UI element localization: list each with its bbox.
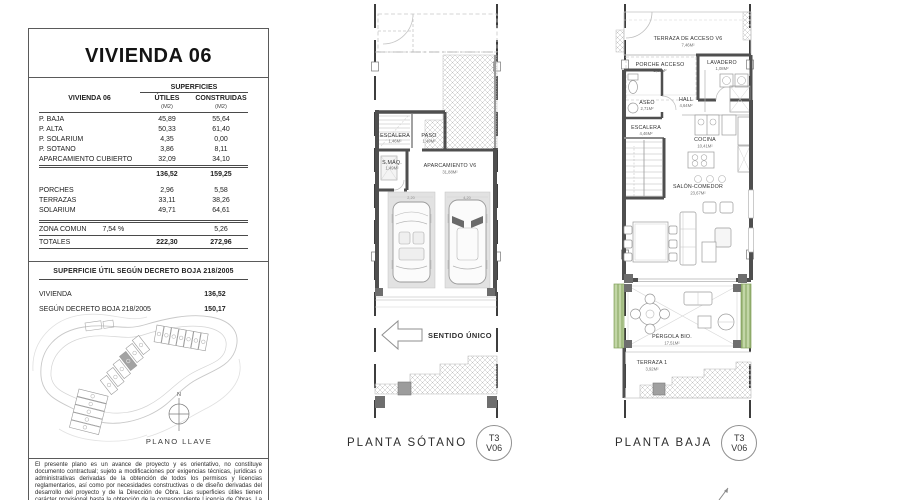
room-area-terraza1: 3,92M²	[645, 367, 659, 372]
unit-badge-baja: T3 V06	[721, 425, 757, 461]
unit-label: (M2)	[194, 104, 248, 110]
row-header: VIVIENDA 06	[39, 95, 140, 102]
room-area-terraza-acceso: 7,46M²	[681, 43, 695, 48]
terraza-1	[624, 348, 751, 398]
site-roads	[33, 314, 240, 441]
terraza-acceso	[616, 12, 751, 55]
table-row: P. ALTA 50,33 61,40	[39, 124, 248, 134]
table-group-header-row: SUPERFICIES	[39, 83, 248, 93]
divider	[39, 112, 248, 113]
north-arrow-partial	[715, 486, 735, 500]
caption-baja: PLANTA BAJA T3 V06	[615, 425, 757, 461]
unit-label: (M2)	[140, 104, 194, 110]
svg-text:N: N	[177, 392, 181, 398]
decreto-row: VIVIENDA 136,52	[39, 287, 248, 302]
room-label-aparcamiento: APARCAMIENTO V6	[424, 163, 477, 169]
room-area-smaq: 1,49M²	[385, 166, 399, 171]
dining-set	[624, 222, 677, 262]
table-row: P. SOLÁRIUM 4,35 0,00	[39, 134, 248, 144]
plan-title-baja: PLANTA BAJA	[615, 437, 712, 449]
room-area-escalera-baja: 4,46M²	[639, 131, 653, 136]
room-area-cocina: 10,41M²	[697, 144, 713, 149]
car-left	[392, 202, 432, 282]
site-plots-upper-row	[154, 325, 208, 351]
room-label-salon: SALÓN-COMEDOR	[673, 183, 723, 190]
key-plan-caption: PLANO LLAVE	[146, 437, 212, 446]
upper-floor-projection	[378, 14, 497, 52]
cocina	[688, 115, 750, 183]
room-area-aseo: 2,71M²	[640, 106, 654, 111]
planter-left	[614, 284, 624, 348]
table-unit-row: (M2) (M2)	[39, 103, 248, 111]
group-header: SUPERFICIES	[140, 84, 248, 93]
caption-sotano: PLANTA SÓTANO T3 V06	[347, 425, 512, 461]
site-plots-lower-block	[69, 389, 108, 435]
room-area-pergola: 17,51M²	[664, 341, 680, 346]
page-title: VIVIENDA 06	[29, 45, 268, 68]
unit-badge-sotano: T3 V06	[476, 425, 512, 461]
floor-plan-sotano: ESCALERA 1,46M² PASO 1,49M² S.MÁQ. 1,49M…	[350, 0, 510, 420]
room-area-paso: 1,49M²	[422, 139, 436, 144]
table-row: SOLÁRIUM 49,71 64,61	[39, 205, 248, 215]
room-area-aparcamiento: 31,88M²	[442, 170, 458, 175]
divider	[39, 165, 248, 168]
key-site-plan: N PLANO LLAVE	[29, 301, 268, 456]
table-row: TERRAZAS 33,11 38,26	[39, 195, 248, 205]
room-label-cocina: COCINA	[694, 137, 716, 143]
table-row: P. SÓTANO 3,86 8,11	[39, 144, 248, 154]
car-right	[448, 200, 488, 284]
room-label-pergola: PÉRGOLA BIO.	[652, 333, 692, 340]
table-row: PORCHES 2,96 5,58	[39, 185, 248, 195]
totals-row: TOTALES 222,30 272,96	[39, 237, 248, 247]
direction-label: SENTIDO ÚNICO	[428, 331, 492, 340]
col-header-utiles: ÚTILES	[140, 95, 194, 102]
divider	[39, 220, 248, 223]
site-plots-middle-row	[100, 335, 149, 394]
room-label-terraza1: TERRAZA 1	[637, 360, 668, 366]
room-area-salon: 23,67M²	[690, 191, 706, 196]
room-area-hall: 4,64M²	[679, 103, 693, 108]
zona-comun-pct: 7,54 %	[102, 226, 124, 233]
divider	[39, 235, 248, 236]
divider	[39, 279, 248, 280]
room-area-lavadero: 1,08M²	[715, 66, 729, 71]
room-area-escalera: 1,46M²	[388, 139, 402, 144]
table-header-row: VIVIENDA 06 ÚTILES CONSTRUIDAS	[39, 93, 248, 103]
table-row: APARCAMIENTO CUBIERTO 32,09 34,10	[39, 154, 248, 164]
plan-title-sotano: PLANTA SÓTANO	[347, 437, 467, 449]
room-label-terraza-acceso: TERRAZA DE ACCESO V6	[654, 36, 723, 42]
decreto-title: SUPERFICIE ÚTIL SEGÚN DECRETO BOJA 218/2…	[39, 268, 248, 275]
garage-threshold	[375, 288, 497, 307]
planter-right	[741, 284, 751, 348]
table-row: P. BAJA 45,89 55,64	[39, 114, 248, 124]
zona-comun-row: ZONA COMÚN7,54 % 5,26	[39, 224, 248, 234]
divider	[39, 248, 248, 249]
col-header-construidas: CONSTRUIDAS	[194, 95, 248, 102]
drawing-sheet: VIVIENDA 06 SUPERFICIES VIVIENDA 06 ÚTIL…	[0, 0, 900, 500]
site-amenity-buildings	[85, 319, 114, 331]
floor-plan-baja: TERRAZA DE ACCESO V6 7,46M² PORCHE ACCES…	[600, 0, 765, 420]
areas-table: SUPERFICIES VIVIENDA 06 ÚTILES CONSTRUID…	[29, 78, 268, 249]
escalera	[624, 138, 664, 198]
ramp-hatch	[375, 356, 497, 408]
parking-dim-1: 2,20	[407, 196, 414, 200]
direction-arrow	[382, 321, 422, 349]
north-compass: N	[169, 392, 189, 431]
pergola-table-set	[631, 294, 670, 334]
sofa-set	[680, 202, 733, 265]
disclaimer-text: El presente plano es un avance de proyec…	[29, 458, 268, 500]
parking-dim-2: 4,20	[463, 196, 470, 200]
subtotal-row: 136,52 159,25	[39, 169, 248, 179]
title-panel: VIVIENDA 06 SUPERFICIES VIVIENDA 06 ÚTIL…	[28, 28, 269, 500]
